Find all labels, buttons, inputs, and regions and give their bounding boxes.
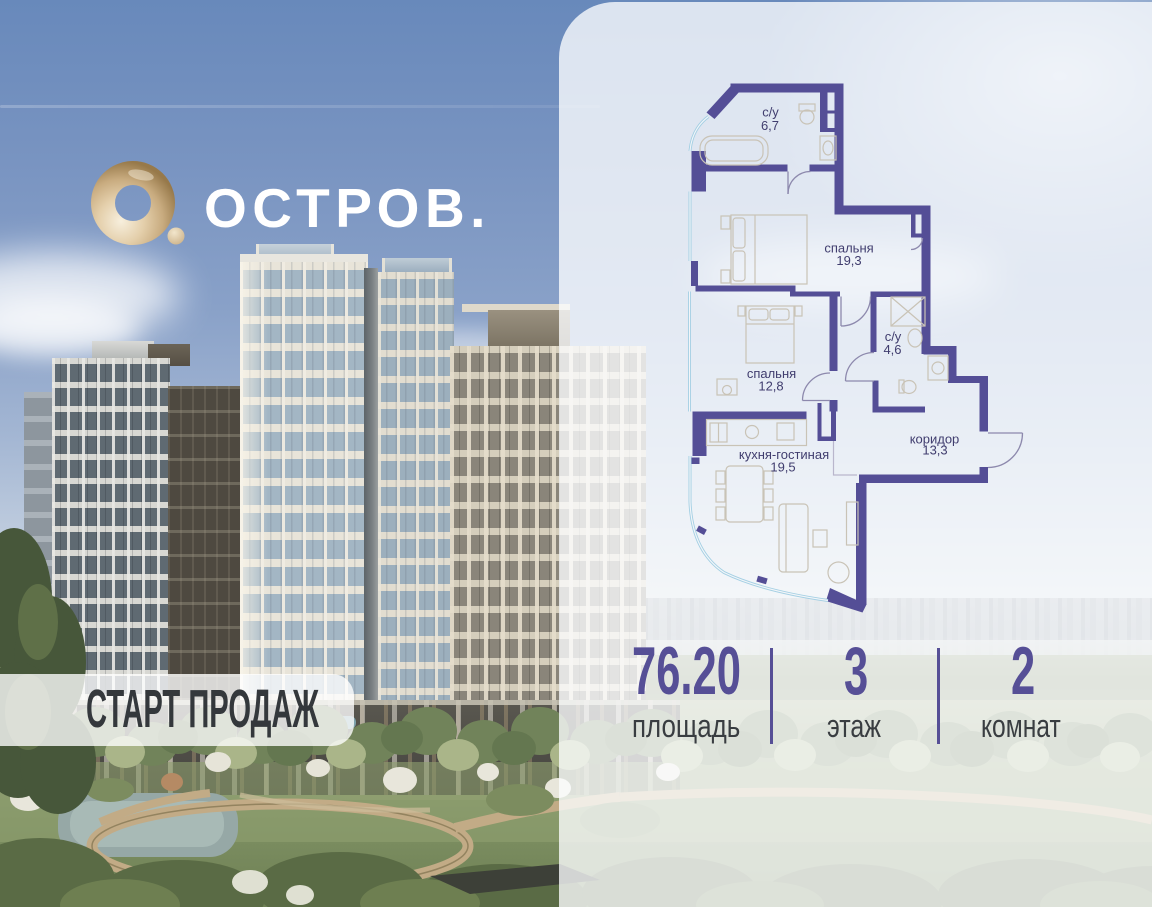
- svg-text:6,7: 6,7: [761, 118, 779, 133]
- svg-text:13,3: 13,3: [922, 443, 947, 458]
- svg-text:19,5: 19,5: [770, 460, 795, 475]
- svg-text:4,6: 4,6: [883, 342, 901, 357]
- svg-text:19,3: 19,3: [836, 253, 861, 268]
- svg-text:12,8: 12,8: [758, 379, 783, 394]
